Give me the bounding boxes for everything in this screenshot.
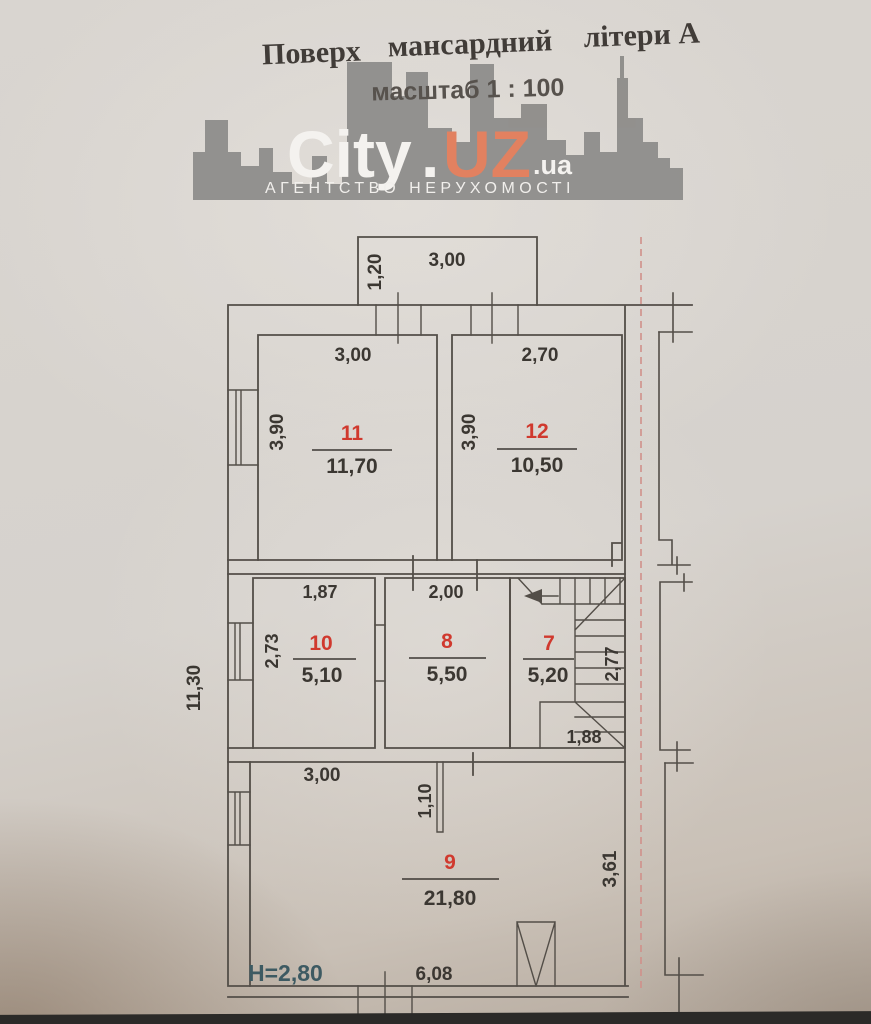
door-room10-room8	[375, 625, 385, 681]
room-8-number: 8	[441, 630, 453, 653]
room-11-number: 11	[341, 422, 364, 445]
dim-room10-height: 2,73	[262, 633, 282, 668]
room-12-number: 12	[525, 420, 548, 443]
room-labels: 11 11,70 12 10,50 10 5,10 8 5,50 7 5,20 …	[293, 420, 577, 910]
room-8-area: 5,50	[427, 663, 468, 686]
dim-room12-height: 3,90	[459, 414, 480, 451]
dim-stair-depth: 2,77	[602, 646, 622, 681]
dim-room8-width: 2,00	[428, 582, 463, 602]
dim-overall-height: 11,30	[184, 665, 205, 712]
band-room9-top	[228, 748, 625, 775]
ceiling-height-note: H=2,80	[248, 960, 323, 986]
corridor-band	[228, 556, 625, 590]
chimney-shaft-symbol	[517, 922, 555, 986]
dim-room9-bottom: 6,08	[416, 964, 453, 985]
page-title-word-2: мансардний	[387, 24, 553, 63]
dim-room9-niche: 1,10	[415, 783, 435, 818]
room-9-niche-wall	[437, 762, 443, 832]
room-10-number: 10	[309, 632, 332, 655]
left-window-middle	[228, 623, 253, 680]
room-10-area: 5,10	[302, 664, 343, 687]
left-window-top	[228, 390, 258, 465]
page-title-word-3: літери А	[583, 17, 701, 54]
room-12-area: 10,50	[511, 454, 564, 477]
left-window-bottom	[228, 792, 250, 845]
stair-arrow-head	[524, 589, 542, 603]
page-title-word-1: Поверх	[261, 35, 361, 72]
room-7-area: 5,20	[528, 664, 569, 687]
dim-room9-width: 3,00	[304, 765, 341, 786]
dim-room9-right: 3,61	[600, 850, 621, 887]
dim-stair-width: 1,88	[566, 727, 601, 747]
dim-room10-width: 1,87	[302, 582, 337, 602]
dim-room12-width: 2,70	[522, 345, 559, 366]
dim-room11-width: 3,00	[335, 345, 372, 366]
floor-plan-canvas: Поверх мансардний літери А масштаб 1 : 1…	[0, 0, 871, 1024]
room-9-number: 9	[444, 851, 456, 874]
logo-tagline: АГЕНТСТВО НЕРУХОМОСТІ	[265, 180, 575, 197]
scanned-floor-plan-photo: Поверх мансардний літери А масштаб 1 : 1…	[0, 0, 871, 1024]
header: Поверх мансардний літери А масштаб 1 : 1…	[261, 17, 701, 107]
logo-ua-suffix: .ua	[533, 150, 573, 180]
dim-balcony-depth: 1,20	[365, 254, 386, 291]
dim-room11-height: 3,90	[267, 414, 288, 451]
bottom-wall-door	[358, 972, 412, 1015]
room-11-area: 11,70	[326, 455, 377, 478]
scale-label: масштаб 1 : 100	[371, 73, 565, 106]
right-neighbor-walls	[658, 293, 703, 1012]
dim-balcony-width: 3,00	[429, 250, 466, 271]
room-9-area: 21,80	[424, 887, 477, 910]
room-7-number: 7	[543, 632, 555, 655]
